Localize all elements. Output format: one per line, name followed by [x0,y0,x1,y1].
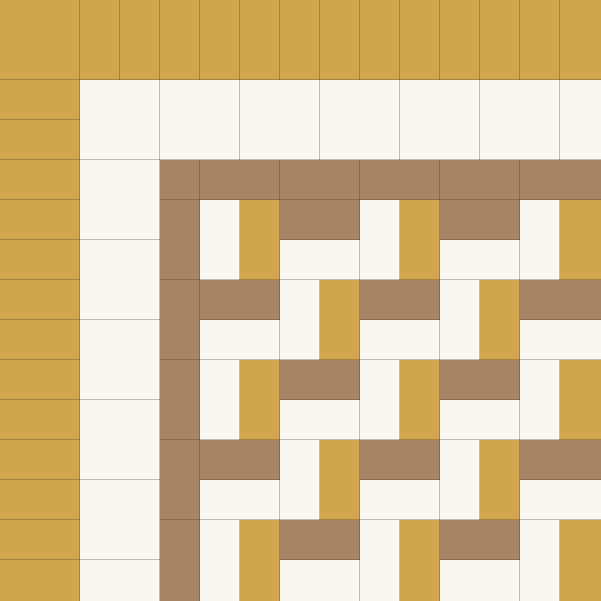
weave-horizontal-cream-rect [440,560,520,601]
weave-vertical-gold-rect [400,200,440,280]
weave-horizontal-brown-rect [520,440,601,480]
weave-vertical-cream-rect [280,440,320,520]
gold-border-strip-top [480,0,520,80]
cream-border-strip-top [240,80,320,160]
weave-vertical-gold-rect [400,360,440,440]
weave-vertical-cream-rect [520,200,560,280]
brown-frame-strip-top [440,160,520,200]
weave-horizontal-brown-rect [440,200,520,240]
cream-border-strip-top [560,80,601,160]
weave-horizontal-brown-rect [280,360,360,400]
brown-frame-corner [160,160,200,200]
gold-border-strip-top [560,0,601,80]
weave-vertical-gold-rect [240,200,280,280]
weave-horizontal-cream-rect [360,320,440,360]
gold-border-strip-top [200,0,240,80]
weave-horizontal-brown-rect [200,280,280,320]
weave-horizontal-cream-rect [440,240,520,280]
gold-border-strip-left [0,280,80,320]
weave-horizontal-cream-rect [280,560,360,601]
weave-vertical-cream-rect [200,200,240,280]
cream-border-strip-left [80,320,160,400]
gold-border-strip-left [0,120,80,160]
gold-border-strip-top [440,0,480,80]
gold-border-strip-top [520,0,560,80]
cream-border-strip-top [400,80,480,160]
gold-border-strip-left [0,440,80,480]
gold-border-corner [0,0,80,80]
weave-vertical-cream-rect [200,360,240,440]
weave-vertical-gold-rect [400,520,440,601]
weave-horizontal-cream-rect [200,320,280,360]
brown-frame-strip-top [280,160,360,200]
gold-border-strip-left [0,80,80,120]
cream-border-strip-top [480,80,560,160]
gold-border-strip-top [80,0,120,80]
weave-vertical-gold-rect [240,520,280,601]
weave-horizontal-cream-rect [520,480,601,520]
cream-border-strip-left [80,400,160,480]
weave-vertical-cream-rect [360,360,400,440]
gold-border-strip-top [240,0,280,80]
gold-border-strip-top [120,0,160,80]
brown-frame-strip-top [200,160,280,200]
weave-horizontal-cream-rect [440,400,520,440]
weave-vertical-cream-rect [360,520,400,601]
weave-horizontal-brown-rect [280,520,360,560]
brown-frame-strip-left [160,520,200,601]
brown-frame-strip-left [160,360,200,440]
weave-horizontal-brown-rect [440,360,520,400]
weave-horizontal-cream-rect [280,400,360,440]
gold-border-strip-left [0,360,80,400]
cream-border-strip-left [80,240,160,320]
gold-border-strip-left [0,320,80,360]
cream-border-strip-left [80,480,160,560]
brown-frame-strip-top [360,160,440,200]
gold-border-strip-left [0,200,80,240]
gold-border-strip-top [160,0,200,80]
weave-vertical-cream-rect [360,200,400,280]
weave-horizontal-brown-rect [360,280,440,320]
weave-horizontal-brown-rect [360,440,440,480]
weave-vertical-cream-rect [440,440,480,520]
weave-vertical-cream-rect [440,280,480,360]
weave-vertical-gold-rect [240,360,280,440]
quilt-pattern [0,0,601,601]
weave-vertical-gold-rect [480,440,520,520]
cream-border-strip-left [80,560,160,601]
weave-vertical-cream-rect [520,520,560,601]
weave-vertical-cream-rect [200,520,240,601]
brown-frame-strip-top [520,160,601,200]
weave-horizontal-cream-rect [280,240,360,280]
weave-horizontal-cream-rect [200,480,280,520]
weave-vertical-gold-rect [480,280,520,360]
gold-border-strip-left [0,560,80,601]
cream-border-corner [80,80,160,160]
weave-vertical-cream-rect [280,280,320,360]
weave-vertical-gold-rect [320,280,360,360]
gold-border-strip-left [0,240,80,280]
weave-horizontal-brown-rect [200,440,280,480]
weave-horizontal-brown-rect [520,280,601,320]
weave-horizontal-brown-rect [440,520,520,560]
weave-horizontal-brown-rect [280,200,360,240]
cream-border-strip-top [160,80,240,160]
gold-border-strip-left [0,160,80,200]
gold-border-strip-top [360,0,400,80]
brown-frame-strip-left [160,200,200,280]
cream-border-strip-top [320,80,400,160]
brown-frame-strip-left [160,280,200,360]
weave-vertical-gold-rect [320,440,360,520]
cream-border-strip-left [80,160,160,240]
weave-horizontal-cream-rect [520,320,601,360]
gold-border-strip-top [400,0,440,80]
weave-vertical-gold-rect [560,360,601,440]
weave-vertical-gold-rect [560,520,601,601]
weave-vertical-cream-rect [520,360,560,440]
gold-border-strip-left [0,480,80,520]
weave-horizontal-cream-rect [360,480,440,520]
gold-border-strip-left [0,520,80,560]
gold-border-strip-left [0,400,80,440]
weave-vertical-gold-rect [560,200,601,280]
brown-frame-strip-left [160,440,200,520]
gold-border-strip-top [280,0,320,80]
gold-border-strip-top [320,0,360,80]
